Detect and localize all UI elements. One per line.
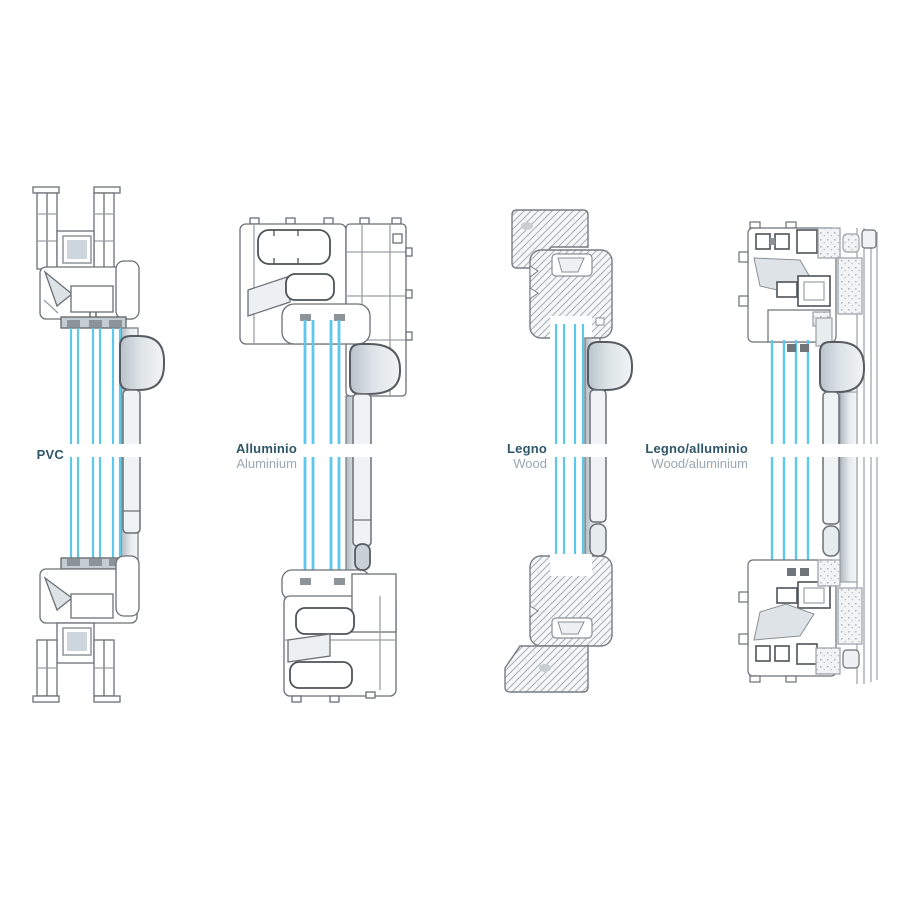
label-aluminium: Alluminio Aluminium [236, 442, 297, 471]
label-wood-aluminium-title: Legno/alluminio [645, 442, 748, 456]
label-wood-subtitle: Wood [507, 457, 547, 471]
pvc-handle [120, 336, 164, 533]
cross-sections-illustration [0, 0, 900, 900]
wood-glazing [556, 324, 583, 560]
wood-aluminium-sash-column [840, 392, 857, 582]
wood-bottom-frame [505, 554, 612, 692]
pvc-top-frame [33, 187, 139, 328]
label-pvc: PVC [37, 448, 64, 463]
label-wood-title: Legno [507, 442, 547, 456]
label-wood-aluminium: Legno/alluminio Wood/aluminium [645, 442, 748, 471]
wood-aluminium-top-frame [739, 222, 876, 346]
label-wood-aluminium-subtitle: Wood/aluminium [645, 457, 748, 471]
aluminium-bottom-frame [282, 570, 396, 702]
wood-top-frame [512, 210, 612, 340]
label-wood: Legno Wood [507, 442, 547, 471]
pvc-bottom-frame [33, 556, 139, 702]
wood-aluminium-glazing [772, 340, 808, 576]
label-pvc-title: PVC [37, 448, 64, 462]
label-aluminium-subtitle: Aluminium [236, 457, 297, 471]
cross-section-comparison-canvas: PVC Alluminio Aluminium Legno Wood Legno… [0, 0, 900, 900]
label-gap-band [0, 444, 900, 457]
label-aluminium-title: Alluminio [236, 442, 297, 456]
